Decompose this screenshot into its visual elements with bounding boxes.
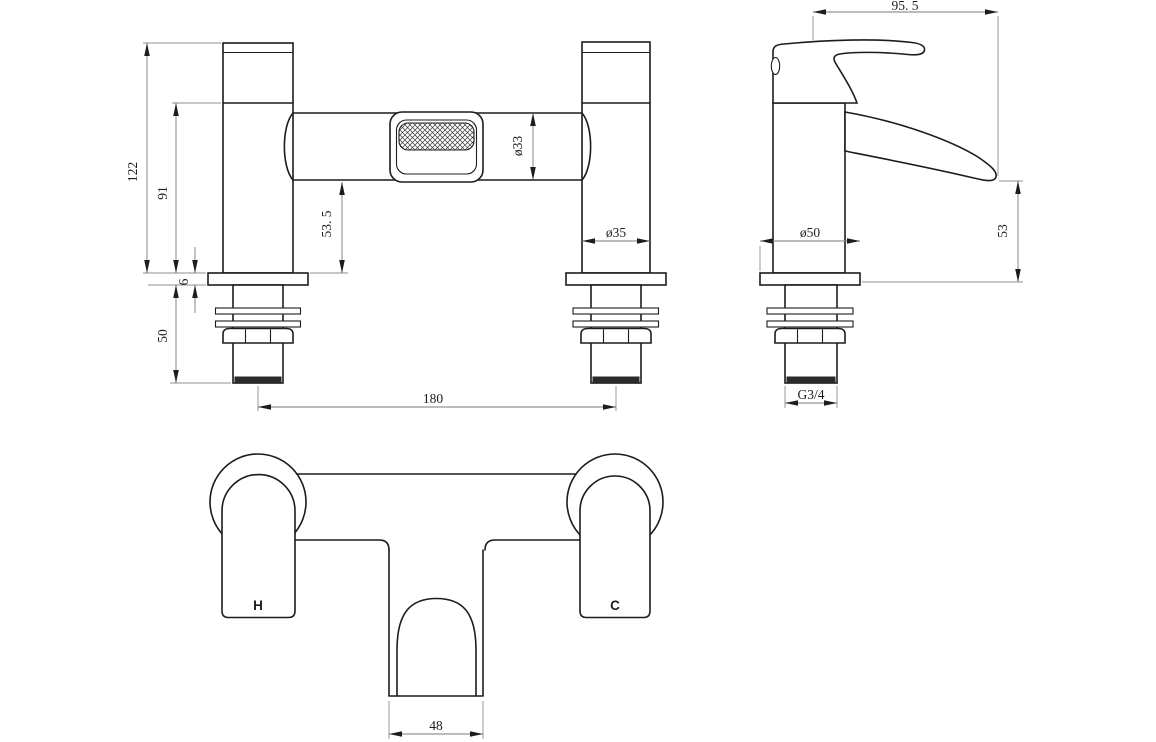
cold-washer-2 <box>573 321 659 327</box>
hot-washer-2 <box>216 321 301 327</box>
dim-text-pillar-diameter: ø35 <box>606 225 627 240</box>
dim-text-inlet-thread: G3/4 <box>798 387 825 402</box>
hot-flange-front <box>208 273 308 285</box>
front-dimensions: 122 91 53. 5 6 50 ø33 ø35 180 <box>125 43 650 411</box>
backnut-side <box>775 329 845 344</box>
dim-text-total-height: 122 <box>125 162 140 182</box>
cold-backnut <box>581 329 651 344</box>
dim-text-spout-projection: 95. 5 <box>892 0 919 13</box>
dim-text-shank-length: 50 <box>155 329 170 343</box>
cold-label: C <box>610 598 620 613</box>
side-view: 95. 5 ø50 53 G3/4 <box>760 0 1023 408</box>
dim-text-body-diameter: ø33 <box>510 136 525 157</box>
hot-washer-1 <box>216 308 301 314</box>
lever-handle-side <box>773 40 925 103</box>
flange-side <box>760 273 860 285</box>
technical-drawing-canvas: 122 91 53. 5 6 50 ø33 ø35 180 <box>0 0 1156 742</box>
hot-backnut <box>223 329 293 344</box>
pillar-side <box>773 103 845 273</box>
cold-washer-1 <box>573 308 659 314</box>
spout-outline-plan <box>389 550 483 696</box>
dim-text-spout-height: 53 <box>995 224 1010 238</box>
hot-thread-band <box>235 377 282 384</box>
spout-nose-plan <box>397 599 476 697</box>
indicator-button-side <box>771 58 779 75</box>
aerator-mesh <box>399 123 474 150</box>
body-bottom-edge-left-plan <box>287 540 389 550</box>
dim-text-hole-centres: 180 <box>423 391 444 406</box>
hot-label: H <box>253 598 263 613</box>
washer-1-side <box>767 308 853 314</box>
front-view: 122 91 53. 5 6 50 ø33 ø35 180 <box>125 42 666 411</box>
cold-handle-plan <box>580 476 650 618</box>
hot-pillar-front <box>223 43 293 273</box>
washer-2-side <box>767 321 853 327</box>
dim-text-spout-clearance: 53. 5 <box>319 210 334 237</box>
hot-handle-plan <box>222 475 295 618</box>
waterfall-spout-side <box>845 112 996 181</box>
thread-band-side <box>787 377 836 384</box>
top-view: H C 48 <box>210 454 663 739</box>
bath-filler-tap-drawing: 122 91 53. 5 6 50 ø33 ø35 180 <box>0 0 1156 742</box>
cold-flange-front <box>566 273 666 285</box>
body-bottom-edge-right-plan <box>485 540 586 550</box>
dim-text-base-diameter: ø50 <box>800 225 821 240</box>
cold-thread-band <box>593 377 640 384</box>
dim-text-spout-width: 48 <box>429 718 443 733</box>
dim-text-body-height: 91 <box>155 186 170 200</box>
top-dimensions: 48 <box>389 701 483 739</box>
dim-text-deck-thickness: 6 <box>176 278 191 285</box>
